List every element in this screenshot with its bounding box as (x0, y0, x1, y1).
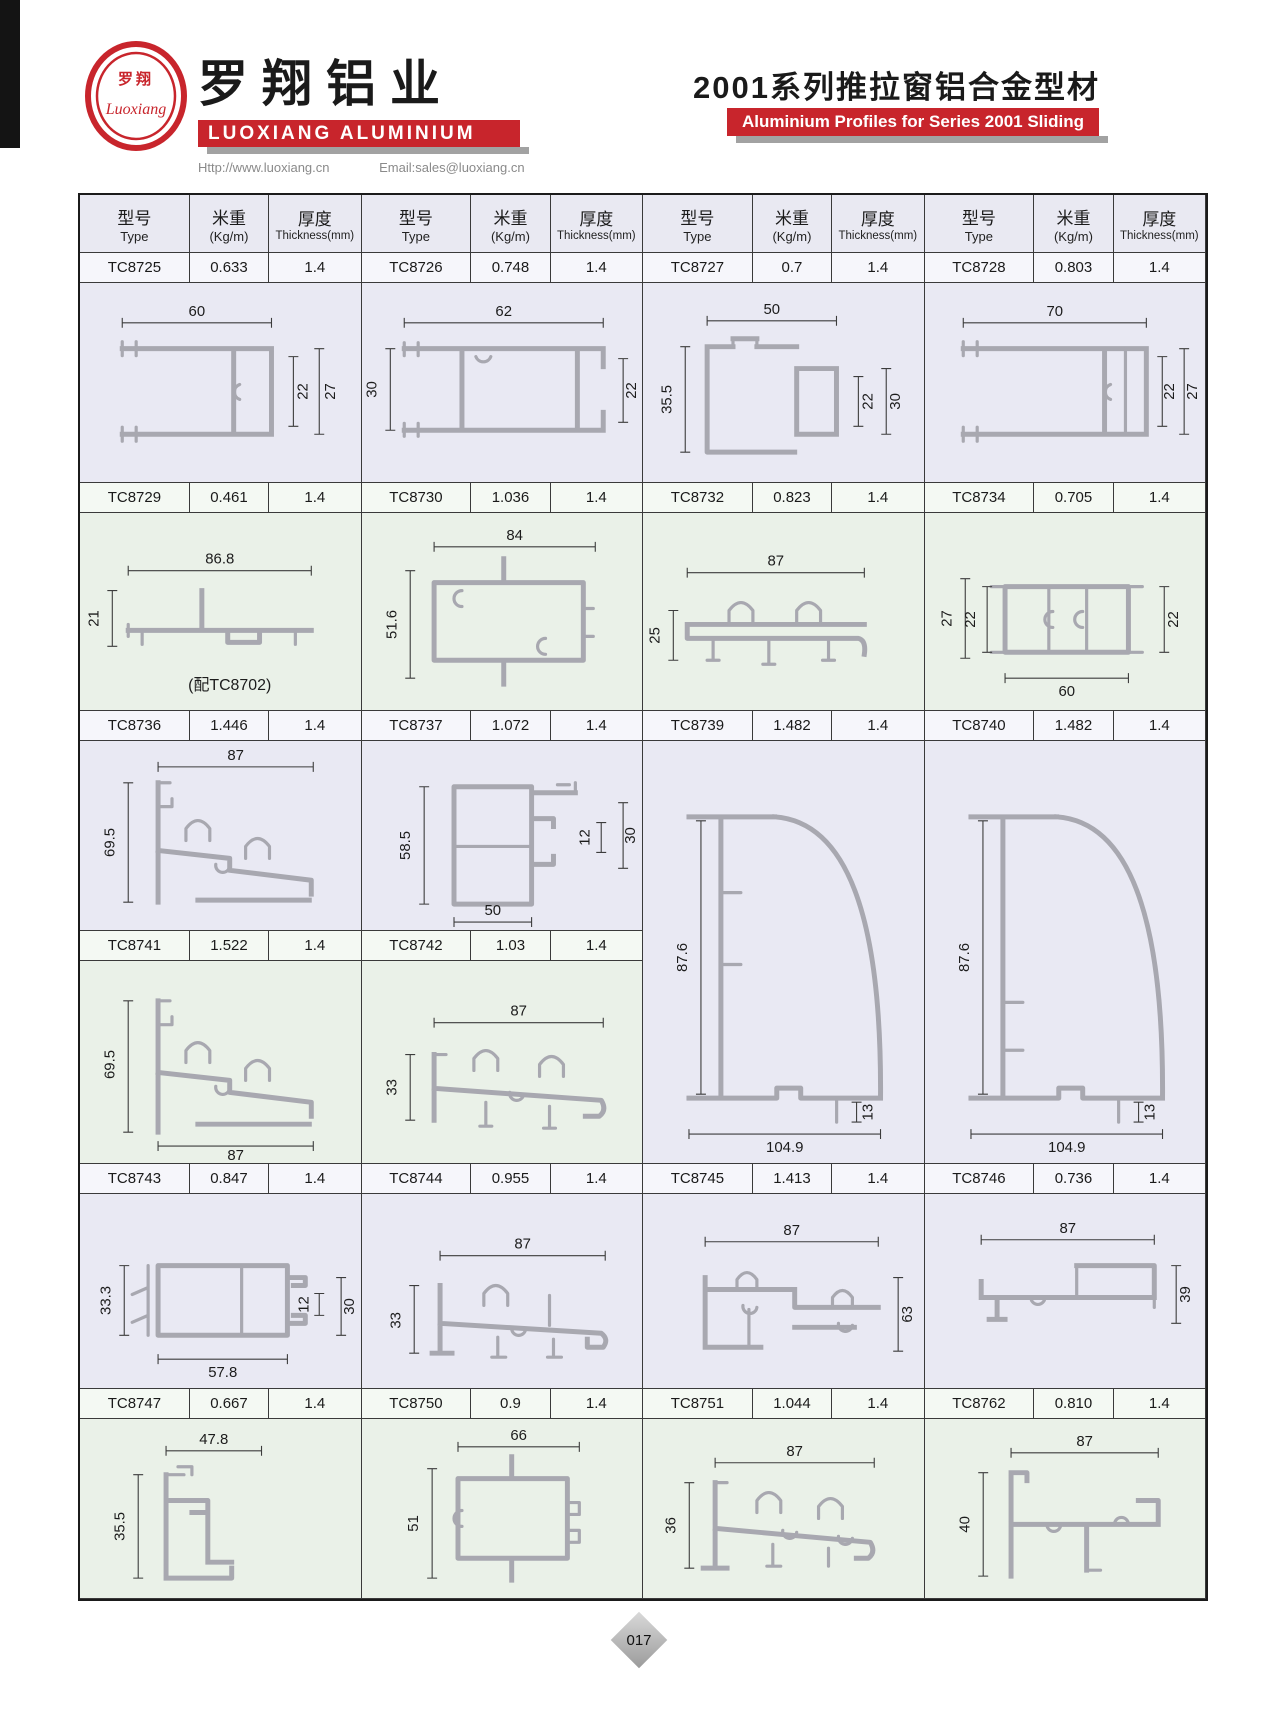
type-cell: TC8739 (643, 711, 753, 740)
profile-outline (454, 1457, 579, 1580)
dim-label: 27 (1184, 383, 1201, 400)
dimension-lines (122, 318, 324, 434)
col-header-type-cn: 型号 (399, 204, 433, 229)
col-header-type-en: Type (120, 229, 148, 244)
dim-label: 30 (887, 393, 904, 410)
dim-label: 50 (484, 902, 501, 919)
bar-shadow (207, 147, 529, 154)
profile-drawing-tc8746: 87 39 (925, 1194, 1206, 1388)
profile-outline (991, 587, 1142, 653)
logo-emblem-icon: 罗翔 Luoxiang (84, 40, 188, 152)
pairing-note: (配TC8702) (188, 676, 271, 694)
drawing-cell-tc8725: 60 22 27 (80, 283, 362, 483)
type-cell: TC8762 (925, 1389, 1035, 1418)
dim-label: 27 (322, 383, 339, 400)
dimension-lines (107, 566, 311, 647)
drawing-cell-tc8728: 70 22 27 (925, 283, 1207, 483)
type-cell: TC8727 (643, 253, 753, 282)
weight-cell: 1.044 (753, 1389, 832, 1418)
logo-cn-text: 罗翔 (118, 70, 154, 88)
profile-outline (434, 1051, 604, 1129)
type-cell: TC8736 (80, 711, 190, 740)
dim-label: 104.9 (766, 1139, 803, 1156)
col-header-type: 型号Type (80, 195, 190, 252)
profile-drawing-tc8732: 87 25 (643, 513, 924, 710)
col-header-type: 型号Type (362, 195, 472, 252)
weight-cell: 1.522 (190, 931, 269, 960)
weight-cell: 1.482 (753, 711, 832, 740)
profile-drawing-tc8745: 87 63 (643, 1194, 924, 1388)
profile-outline (981, 1266, 1154, 1320)
dim-label: 87 (1076, 1434, 1093, 1450)
table-row: TC87290.4611.4 (80, 483, 362, 513)
drawing-cell-tc8741: 69.5 87 (80, 961, 362, 1164)
col-header-thickness-cn: 厚度 (1142, 205, 1176, 230)
table-row: TC87340.7051.4 (925, 483, 1207, 513)
dim-label: 40 (957, 1516, 973, 1533)
page-number-badge: 017 (609, 1610, 669, 1670)
thickness-cell: 1.4 (269, 1389, 360, 1418)
col-header-thickness-cn: 厚度 (298, 205, 332, 230)
dim-label: 87 (510, 1003, 527, 1020)
dim-label: 12 (576, 829, 593, 846)
type-cell: TC8742 (362, 931, 472, 960)
weight-cell: 0.7 (753, 253, 832, 282)
profile-outline (1011, 1473, 1158, 1576)
dim-label: 60 (189, 303, 206, 320)
website-link[interactable]: Http://www.luoxiang.cn (198, 160, 330, 175)
table-row: TC87301.0361.4 (362, 483, 644, 513)
thickness-cell: 1.4 (551, 711, 642, 740)
dimension-lines (705, 1237, 903, 1351)
profile-outline (158, 1001, 311, 1132)
table-row: TC87500.91.4 (362, 1389, 644, 1419)
table-row: TC87440.9551.4 (362, 1164, 644, 1194)
drawing-cell-tc8736: 87 69.5 (80, 741, 362, 931)
profile-outline (122, 342, 271, 442)
weight-cell: 1.03 (471, 931, 550, 960)
series-title-en-bar: Aluminium Profiles for Series 2001 Slidi… (727, 108, 1099, 136)
dimension-lines (680, 316, 891, 452)
profile-outline (705, 1273, 878, 1348)
type-cell: TC8750 (362, 1389, 472, 1418)
col-header-weight-cn: 米重 (775, 204, 809, 229)
thickness-cell: 1.4 (1114, 711, 1205, 740)
company-logo: 罗翔 Luoxiang (84, 40, 188, 152)
profiles-table: 型号Type 米重(Kg/m) 厚度Thickness(mm) 型号Type 米… (78, 193, 1208, 1601)
col-header-weight: 米重(Kg/m) (190, 195, 269, 252)
dim-label: 87 (514, 1236, 531, 1253)
dim-label: 104.9 (1048, 1139, 1085, 1156)
dimension-lines (119, 1266, 346, 1364)
col-header-thickness: 厚度Thickness(mm) (551, 195, 642, 252)
dim-label: 87.6 (674, 943, 691, 972)
dim-label: 87 (786, 1444, 803, 1460)
weight-cell: 0.705 (1034, 483, 1113, 512)
dimension-lines (978, 1448, 1158, 1576)
col-header-weight-en: (Kg/m) (1054, 229, 1093, 244)
dim-label: 35.5 (658, 385, 675, 414)
profile-drawing-tc8751: 87 36 (643, 1419, 924, 1598)
dim-label: 13 (860, 1104, 877, 1121)
email-link[interactable]: Email:sales@luoxiang.cn (379, 160, 524, 175)
drawing-cell-tc8739: 87.6 13 104.9 (643, 741, 925, 1164)
profile-outline (454, 783, 575, 904)
drawing-cell-tc8745: 87 63 (643, 1194, 925, 1389)
profile-outline (963, 342, 1146, 442)
dim-label: 51.6 (383, 610, 400, 639)
col-header-type-en: Type (683, 229, 711, 244)
dim-label: 30 (363, 381, 380, 398)
table-row: TC87411.5221.4 (80, 931, 362, 961)
thickness-cell: 1.4 (551, 483, 642, 512)
contact-row: Http://www.luoxiang.cn Email:sales@luoxi… (198, 160, 571, 175)
dimension-lines (963, 318, 1189, 434)
type-cell: TC8740 (925, 711, 1035, 740)
drawing-cell-tc8730: 84 51.6 (362, 513, 644, 711)
profile-drawing-tc8736: 87 69.5 (80, 741, 361, 930)
drawing-cell-tc8740: 87.6 13 104.9 (925, 741, 1207, 1164)
col-header-type-en: Type (965, 229, 993, 244)
type-cell: TC8743 (80, 1164, 190, 1193)
dim-label: 51 (406, 1515, 422, 1532)
weight-cell: 0.810 (1034, 1389, 1113, 1418)
col-header-weight: 米重(Kg/m) (753, 195, 832, 252)
profile-outline (434, 559, 593, 684)
table-row: TC87401.4821.4 (925, 711, 1207, 741)
profile-drawing-tc8737: 58.5 12 30 50 (362, 741, 643, 930)
dimension-lines (668, 568, 864, 661)
drawing-cell-tc8726: 62 30 22 (362, 283, 644, 483)
thickness-cell: 1.4 (551, 1389, 642, 1418)
dim-label: 63 (899, 1306, 916, 1323)
profile-outline (689, 817, 881, 1122)
weight-cell: 0.9 (471, 1389, 550, 1418)
thickness-cell: 1.4 (832, 711, 923, 740)
dim-label: 22 (294, 383, 311, 400)
col-header-type-en: Type (402, 229, 430, 244)
dim-label: 62 (495, 303, 512, 320)
drawing-cell-tc8762: 87 40 (925, 1419, 1207, 1599)
dim-label: 21 (85, 610, 102, 627)
dim-label: 22 (1165, 611, 1182, 628)
dim-label: 47.8 (199, 1432, 228, 1448)
drawing-cell-tc8744: 87 33 (362, 1194, 644, 1389)
dim-label: 25 (646, 627, 663, 644)
drawing-cell-tc8751: 87 36 (643, 1419, 925, 1599)
thickness-cell: 1.4 (551, 253, 642, 282)
profile-drawing-tc8741: 69.5 87 (80, 961, 361, 1163)
dim-label: 12 (295, 1296, 312, 1313)
table-row: TC87250.6331.4 (80, 253, 362, 283)
thickness-cell: 1.4 (832, 1389, 923, 1418)
logo-script-text: Luoxiang (105, 101, 166, 118)
series-title-cn: 2001系列推拉窗铝合金型材 (693, 62, 1100, 107)
profile-drawing-tc8726: 62 30 22 (362, 283, 643, 482)
profile-outline (970, 817, 1162, 1122)
profile-outline (158, 783, 311, 902)
table-header-group: 型号Type 米重(Kg/m) 厚度Thickness(mm) (80, 195, 362, 253)
profile-drawing-tc8740: 87.6 13 104.9 (925, 741, 1206, 1163)
thickness-cell: 1.4 (1114, 483, 1205, 512)
weight-cell: 1.446 (190, 711, 269, 740)
dim-label: 87 (227, 1147, 244, 1163)
table-row: TC87371.0721.4 (362, 711, 644, 741)
dim-label: 33 (387, 1312, 404, 1329)
profile-drawing-tc8743: 33.3 12 30 57.8 (80, 1194, 361, 1388)
drawing-cell-tc8747: 47.8 35.5 (80, 1419, 362, 1599)
table-row: TC87511.0441.4 (643, 1389, 925, 1419)
type-cell: TC8729 (80, 483, 190, 512)
col-header-thickness-en: Thickness(mm) (1120, 230, 1199, 242)
profile-outline (166, 1467, 232, 1578)
drawing-cell-tc8742: 87 33 (362, 961, 644, 1164)
drawing-cell-tc8729: 86.8 21 (配TC8702) (80, 513, 362, 711)
type-cell: TC8747 (80, 1389, 190, 1418)
weight-cell: 1.036 (471, 483, 550, 512)
col-header-weight-en: (Kg/m) (772, 229, 811, 244)
col-header-weight-cn: 米重 (1056, 204, 1090, 229)
dim-label: 87.6 (955, 943, 972, 972)
table-row: TC87460.7361.4 (925, 1164, 1207, 1194)
dim-label: 60 (1058, 683, 1075, 700)
dim-label: 27 (938, 610, 955, 627)
profile-drawing-tc8729: 86.8 21 (配TC8702) (80, 513, 361, 710)
dim-label: 87 (1059, 1220, 1076, 1237)
profile-outline (432, 1286, 606, 1358)
dim-label: 66 (510, 1428, 527, 1444)
dim-label: 70 (1046, 303, 1063, 320)
col-header-weight-cn: 米重 (212, 204, 246, 229)
dim-label: 69.5 (101, 1050, 118, 1079)
dim-label: 22 (859, 393, 876, 410)
dim-label: 87 (783, 1222, 800, 1239)
dim-label: 57.8 (208, 1364, 237, 1381)
thickness-cell: 1.4 (832, 483, 923, 512)
drawing-cell-tc8746: 87 39 (925, 1194, 1207, 1389)
table-row: TC87430.8471.4 (80, 1164, 362, 1194)
drawing-cell-tc8732: 87 25 (643, 513, 925, 711)
col-header-weight-en: (Kg/m) (209, 229, 248, 244)
weight-cell: 0.667 (190, 1389, 269, 1418)
table-header-group: 型号Type 米重(Kg/m) 厚度Thickness(mm) (925, 195, 1207, 253)
weight-cell: 0.633 (190, 253, 269, 282)
dim-label: 35.5 (112, 1512, 128, 1541)
dim-label: 58.5 (397, 831, 414, 860)
dimension-lines (970, 821, 1162, 1139)
profile-drawing-tc8730: 84 51.6 (362, 513, 643, 710)
type-cell: TC8744 (362, 1164, 472, 1193)
col-header-type-cn: 型号 (117, 204, 151, 229)
dim-label: 33 (383, 1079, 400, 1096)
thickness-cell: 1.4 (269, 931, 360, 960)
profile-drawing-tc8725: 60 22 27 (80, 283, 361, 482)
type-cell: TC8732 (643, 483, 753, 512)
weight-cell: 0.823 (753, 483, 832, 512)
table-row: TC87361.4461.4 (80, 711, 362, 741)
dim-label: 86.8 (205, 551, 234, 568)
col-header-type-cn: 型号 (962, 204, 996, 229)
profile-drawing-tc8762: 87 40 (925, 1419, 1206, 1598)
dim-label: 39 (1177, 1286, 1194, 1303)
table-header-group: 型号Type 米重(Kg/m) 厚度Thickness(mm) (643, 195, 925, 253)
table-row: TC87620.8101.4 (925, 1389, 1207, 1419)
type-cell: TC8734 (925, 483, 1035, 512)
type-cell: TC8725 (80, 253, 190, 282)
dim-label: 13 (1141, 1104, 1158, 1121)
thickness-cell: 1.4 (269, 253, 360, 282)
drawing-cell-tc8737: 58.5 12 30 50 (362, 741, 644, 931)
type-cell: TC8745 (643, 1164, 753, 1193)
weight-cell: 0.803 (1034, 253, 1113, 282)
col-header-thickness-en: Thickness(mm) (557, 230, 636, 242)
thickness-cell: 1.4 (269, 483, 360, 512)
thickness-cell: 1.4 (551, 1164, 642, 1193)
page-corner-bar (0, 0, 20, 148)
dimension-lines (123, 1001, 313, 1151)
table-row: TC87270.71.4 (643, 253, 925, 283)
profile-drawing-tc8744: 87 33 (362, 1194, 643, 1388)
dim-label: 33.3 (97, 1286, 114, 1315)
weight-cell: 0.847 (190, 1164, 269, 1193)
weight-cell: 1.072 (471, 711, 550, 740)
type-cell: TC8751 (643, 1389, 753, 1418)
profile-drawing-tc8742: 87 33 (362, 961, 643, 1163)
table-row: TC87260.7481.4 (362, 253, 644, 283)
col-header-weight-en: (Kg/m) (491, 229, 530, 244)
dim-label: 87 (227, 747, 244, 764)
type-cell: TC8746 (925, 1164, 1035, 1193)
dim-label: 50 (764, 301, 781, 318)
col-header-type-cn: 型号 (680, 204, 714, 229)
company-name-en-bar: LUOXIANG ALUMINIUM (198, 120, 520, 147)
page-number: 017 (609, 1610, 669, 1670)
profile-outline (132, 1266, 305, 1336)
drawing-cell-tc8750: 66 51 (362, 1419, 644, 1599)
profile-outline (687, 603, 864, 665)
type-cell: TC8737 (362, 711, 472, 740)
dim-label: 69.5 (101, 828, 118, 857)
drawing-cell-tc8743: 33.3 12 30 57.8 (80, 1194, 362, 1389)
table-header-group: 型号Type 米重(Kg/m) 厚度Thickness(mm) (362, 195, 644, 253)
col-header-thickness: 厚度Thickness(mm) (832, 195, 923, 252)
dimension-lines (981, 1235, 1181, 1324)
type-cell: TC8730 (362, 483, 472, 512)
dim-label: 30 (622, 827, 639, 844)
dim-label: 84 (506, 527, 523, 544)
profile-outline (703, 1483, 873, 1569)
weight-cell: 0.955 (471, 1164, 550, 1193)
profile-outline (128, 591, 311, 645)
drawing-cell-tc8727: 50 35.5 22 30 (643, 283, 925, 483)
dim-label: 36 (663, 1517, 679, 1534)
dim-label: 87 (767, 553, 784, 570)
dim-label: 30 (341, 1298, 358, 1315)
type-cell: TC8728 (925, 253, 1035, 282)
weight-cell: 1.482 (1034, 711, 1113, 740)
weight-cell: 0.748 (471, 253, 550, 282)
thickness-cell: 1.4 (269, 711, 360, 740)
profile-outline (404, 343, 603, 437)
col-header-type: 型号Type (925, 195, 1035, 252)
profile-drawing-tc8750: 66 51 (362, 1419, 643, 1598)
table-row: TC87421.031.4 (362, 931, 644, 961)
type-cell: TC8741 (80, 931, 190, 960)
col-header-type: 型号Type (643, 195, 753, 252)
col-header-thickness-en: Thickness(mm) (276, 230, 355, 242)
table-row: TC87391.4821.4 (643, 711, 925, 741)
type-cell: TC8726 (362, 253, 472, 282)
thickness-cell: 1.4 (1114, 1164, 1205, 1193)
profile-drawing-tc8727: 50 35.5 22 30 (643, 283, 924, 482)
col-header-weight-cn: 米重 (493, 204, 527, 229)
dimension-lines (689, 821, 881, 1139)
dim-label: 22 (623, 382, 640, 399)
drawing-cell-tc8734: 27 22 22 60 (925, 513, 1207, 711)
col-header-weight: 米重(Kg/m) (1034, 195, 1113, 252)
catalog-page: 罗翔 Luoxiang 罗翔铝业 LUOXIANG ALUMINIUM Http… (0, 0, 1277, 1721)
col-header-thickness-en: Thickness(mm) (839, 230, 918, 242)
table-row: TC87280.8031.4 (925, 253, 1207, 283)
weight-cell: 0.461 (190, 483, 269, 512)
col-header-thickness: 厚度Thickness(mm) (269, 195, 360, 252)
dimension-lines (960, 579, 1169, 683)
thickness-cell: 1.4 (832, 1164, 923, 1193)
col-header-thickness: 厚度Thickness(mm) (1114, 195, 1205, 252)
dim-label: 22 (962, 611, 979, 628)
profile-drawing-tc8734: 27 22 22 60 (925, 513, 1206, 710)
profile-drawing-tc8747: 47.8 35.5 (80, 1419, 361, 1598)
company-name-cn: 罗翔铝业 (198, 44, 454, 116)
table-row: TC87320.8231.4 (643, 483, 925, 513)
col-header-thickness-cn: 厚度 (579, 205, 613, 230)
dim-label: 22 (1161, 383, 1178, 400)
profile-outline (707, 339, 836, 452)
weight-cell: 1.413 (753, 1164, 832, 1193)
col-header-thickness-cn: 厚度 (861, 205, 895, 230)
dimension-lines (123, 762, 313, 902)
col-header-weight: 米重(Kg/m) (471, 195, 550, 252)
bar-shadow (736, 136, 1108, 143)
thickness-cell: 1.4 (1114, 1389, 1205, 1418)
table-row: TC87470.6671.4 (80, 1389, 362, 1419)
weight-cell: 0.736 (1034, 1164, 1113, 1193)
thickness-cell: 1.4 (551, 931, 642, 960)
dimension-lines (385, 318, 628, 430)
profile-drawing-tc8739: 87.6 13 104.9 (643, 741, 924, 1163)
profile-drawing-tc8728: 70 22 27 (925, 283, 1206, 482)
thickness-cell: 1.4 (1114, 253, 1205, 282)
thickness-cell: 1.4 (832, 253, 923, 282)
thickness-cell: 1.4 (269, 1164, 360, 1193)
table-row: TC87451.4131.4 (643, 1164, 925, 1194)
